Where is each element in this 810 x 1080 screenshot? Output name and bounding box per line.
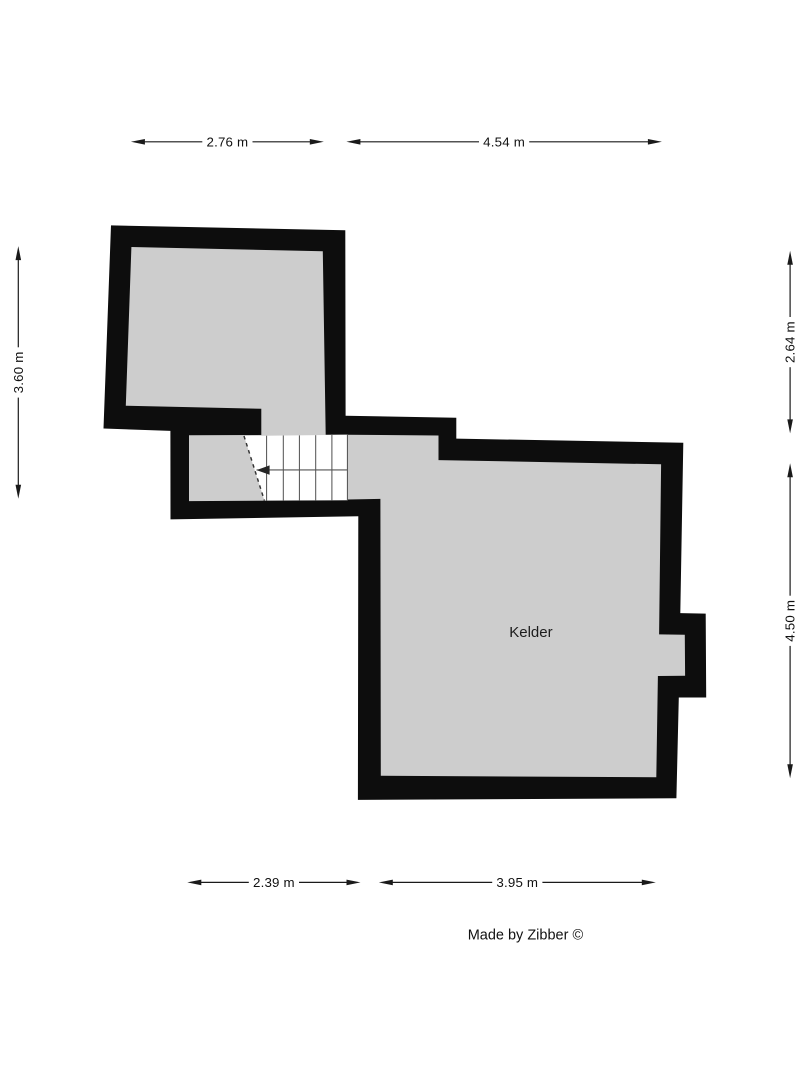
svg-text:Made by Zibber ©: Made by Zibber © [468, 928, 584, 944]
svg-text:4.54 m: 4.54 m [483, 134, 525, 149]
svg-text:3.60 m: 3.60 m [11, 351, 26, 393]
svg-text:3.95 m: 3.95 m [496, 875, 538, 890]
svg-text:2.64 m: 2.64 m [783, 321, 798, 363]
svg-text:2.76 m: 2.76 m [206, 134, 248, 149]
svg-text:Kelder: Kelder [509, 624, 552, 641]
svg-text:4.50 m: 4.50 m [783, 600, 798, 642]
svg-text:2.39 m: 2.39 m [253, 875, 295, 890]
